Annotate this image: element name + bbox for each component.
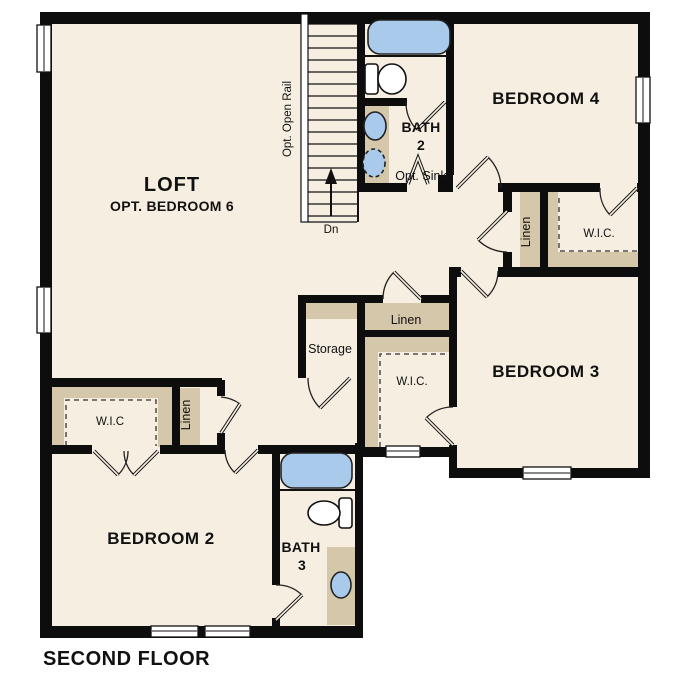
bedroom2-label: BEDROOM 2: [107, 529, 214, 548]
bedroom3-label: BEDROOM 3: [492, 362, 599, 381]
toilet-tank-icon: [339, 498, 352, 528]
bath2-label-line2: 2: [417, 137, 425, 153]
bedroom4-label: BEDROOM 4: [492, 89, 600, 108]
bath2-label-line1: BATH: [401, 119, 440, 135]
floor-plan-page: LOFT OPT. BEDROOM 6 BEDROOM 4 BEDROOM 3 …: [0, 0, 687, 687]
linen-right-label: Linen: [519, 217, 533, 248]
storage-shelf: [306, 303, 357, 319]
linen-center-label: Linen: [391, 313, 422, 327]
loft-label: LOFT: [144, 174, 200, 196]
loft-option-label: OPT. BEDROOM 6: [110, 198, 234, 214]
wic-left-label: W.I.C: [96, 416, 124, 428]
page-title: SECOND FLOOR: [43, 648, 210, 670]
bath2-opt-sink-label: Opt. Sink: [395, 169, 447, 183]
stair-rail: [301, 14, 308, 222]
storage-label: Storage: [308, 342, 352, 356]
toilet-tank-icon: [365, 64, 378, 94]
wic-right-band-bottom: [548, 252, 638, 267]
wic-right-label: W.I.C.: [583, 228, 614, 240]
bathtub-icon: [368, 20, 450, 54]
stairs-down-label: Dn: [324, 224, 339, 236]
open-rail-label: Opt. Open Rail: [282, 81, 294, 157]
sink-icon: [364, 112, 386, 140]
bath3-label-line2: 3: [298, 557, 306, 573]
sink-icon: [331, 572, 351, 598]
bathtub-icon: [281, 453, 352, 488]
optional-sink-icon: [363, 149, 385, 177]
floor-plan-drawing: LOFT OPT. BEDROOM 6 BEDROOM 4 BEDROOM 3 …: [0, 0, 687, 687]
toilet-bowl-icon: [308, 501, 340, 525]
toilet-bowl-icon: [378, 64, 406, 94]
bath3-label-line1: BATH: [281, 539, 320, 555]
linen-left-label: Linen: [179, 400, 193, 431]
wic-center-label: W.I.C.: [396, 376, 427, 388]
